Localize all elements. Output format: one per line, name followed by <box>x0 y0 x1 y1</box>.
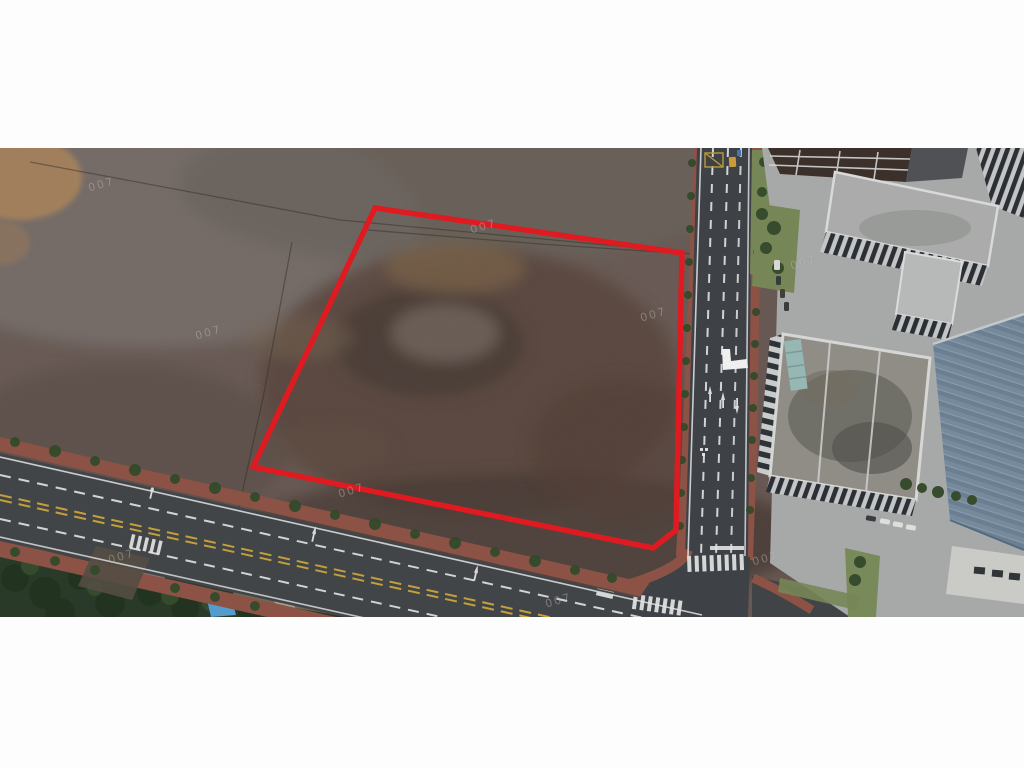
aerial-photo-scene <box>0 148 1024 617</box>
aerial-photo: 007007007007007007007007007 <box>0 148 1024 617</box>
letterbox-top <box>0 0 1024 148</box>
vignette <box>0 148 1024 617</box>
screenshot-stage: 007007007007007007007007007 <box>0 0 1024 768</box>
letterbox-bottom <box>0 617 1024 768</box>
